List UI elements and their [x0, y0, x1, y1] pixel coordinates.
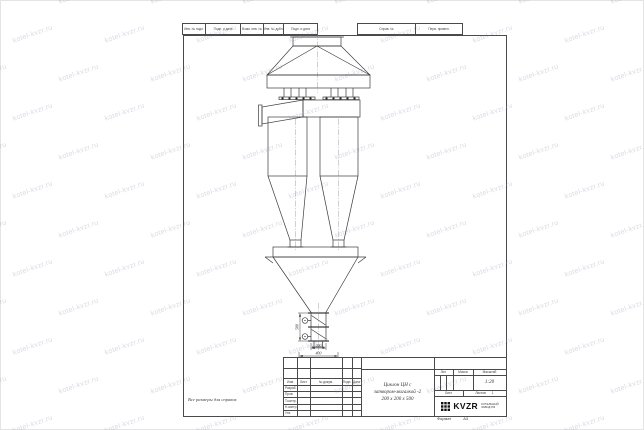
dim-text-valve-width: 200 [316, 344, 322, 348]
company-name-line: ЗАВОД РФ [481, 406, 499, 409]
tb-col-list: Лист [297, 378, 310, 385]
hood [267, 46, 370, 75]
company-logo: KVZR КОТЕЛЬНЫЙ ЗАВОД РФ [435, 397, 505, 415]
tb-sheets-label: Листов [475, 391, 485, 395]
tb-sheets-value: 1 [492, 391, 494, 395]
drawing-title: Циклон ЦН с затвором-мигалкой -2 200 х 2… [362, 370, 433, 415]
dust-hopper [265, 247, 366, 313]
company-name: КОТЕЛЬНЫЙ ЗАВОД РФ [481, 403, 499, 410]
inlet-duct [259, 100, 304, 126]
format-footer: Формат А3 [437, 416, 507, 421]
tb-sheets-cell: Листов 1 [463, 390, 506, 396]
logo-text: KVZR [453, 401, 478, 411]
title-block: Изм. Лист № докум. Подп. Дата Разраб. Пр… [283, 357, 507, 417]
dim-text-valve-height: 500 [294, 324, 299, 330]
plenum-box [267, 75, 370, 97]
flange-bolts [282, 97, 356, 99]
drawing-title-line: 200 х 200 х 500 [382, 397, 414, 402]
tb-row-tkontr: Т.контр. [285, 397, 310, 404]
tb-scale-value: 1:20 [473, 375, 506, 390]
cyclone-cones [268, 176, 358, 247]
tb-col-izm: Изм. [284, 378, 297, 385]
inlet-box [303, 100, 360, 117]
reference-note: Все размеры для справок [188, 397, 237, 402]
centerlines [296, 31, 339, 354]
tb-col-podp: Подп. [342, 378, 352, 385]
tb-sheet-label: Лист [434, 390, 463, 396]
tb-mass-label: Масса [453, 369, 473, 375]
kvzr-grid-icon [441, 402, 450, 411]
tube-flanges [279, 97, 359, 100]
tb-col-dokum: № докум. [310, 378, 342, 385]
dim-text-flange-width: 400 [316, 352, 322, 356]
drawing-preview-image: Инв. № подл. Подп. и дата Взам. инв. № И… [0, 0, 644, 430]
tb-row-utv: Утв. [285, 410, 310, 416]
format-value: А3 [463, 416, 468, 421]
format-label: Формат [437, 416, 451, 421]
dimension-valve-height: 500 [294, 313, 309, 341]
flap-valve [302, 313, 329, 347]
tb-col-data: Дата [352, 378, 361, 385]
cyclone-bodies [268, 117, 358, 176]
drawing-title-line: затвором-мигалкой -2 [374, 390, 421, 395]
outlet-stub [290, 37, 344, 46]
drawing-title-line: Циклон ЦН с [384, 383, 412, 388]
tb-lit-label: Лит. [434, 369, 453, 375]
